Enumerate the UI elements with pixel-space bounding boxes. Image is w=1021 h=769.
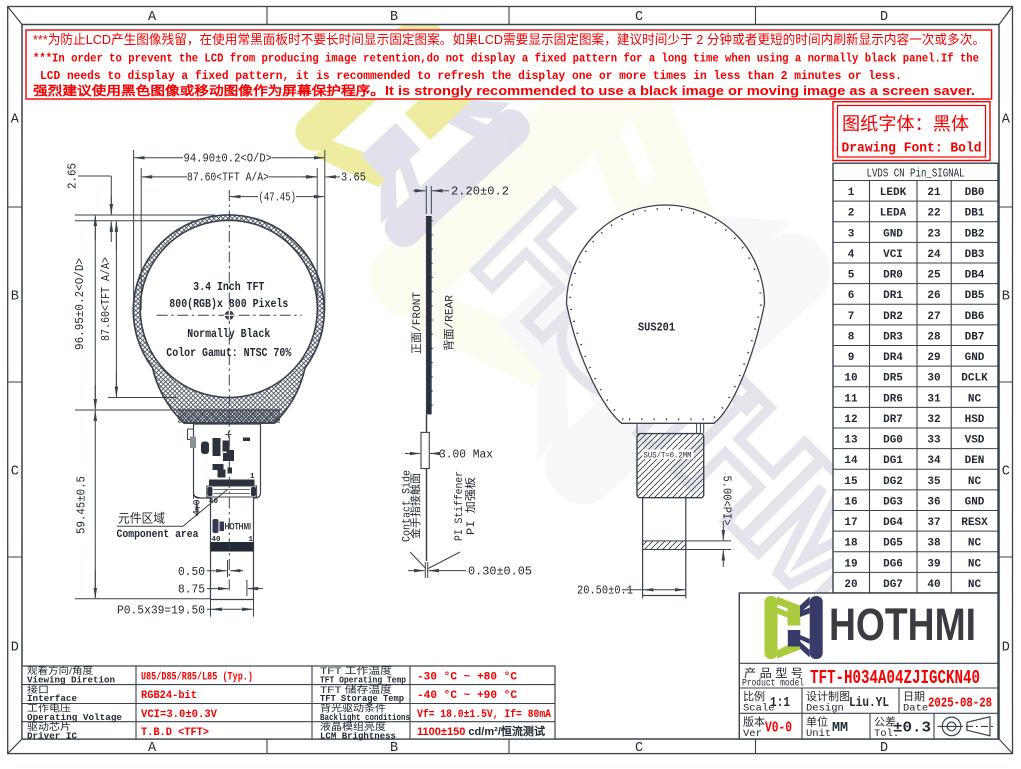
svg-text:2.65: 2.65 xyxy=(67,163,80,189)
svg-text:35: 35 xyxy=(927,476,941,488)
svg-text:13: 13 xyxy=(844,435,858,447)
svg-text:1: 1 xyxy=(848,187,855,199)
svg-text:3: 3 xyxy=(848,228,855,240)
svg-text:1: 1 xyxy=(250,473,255,481)
svg-text:单位: 单位 xyxy=(806,715,828,729)
svg-text:36: 36 xyxy=(927,496,940,508)
svg-text:Unit: Unit xyxy=(806,728,831,740)
svg-text:DB7: DB7 xyxy=(965,331,985,343)
svg-text:B: B xyxy=(390,741,398,756)
svg-text:94.90±0.2<O/D>: 94.90±0.2<O/D> xyxy=(184,153,273,166)
svg-text:3.65: 3.65 xyxy=(341,172,366,185)
svg-text:LCM Brightness: LCM Brightness xyxy=(320,730,396,741)
svg-text:A: A xyxy=(1002,113,1011,128)
svg-text:DR3: DR3 xyxy=(883,331,903,343)
svg-text:DB1: DB1 xyxy=(965,208,985,220)
svg-text:26: 26 xyxy=(927,290,940,302)
svg-text:(47.45): (47.45) xyxy=(259,191,297,204)
svg-text:设计制图: 设计制图 xyxy=(806,690,850,703)
svg-text:NC: NC xyxy=(968,579,982,591)
svg-text:C: C xyxy=(1002,465,1010,480)
svg-text:34: 34 xyxy=(927,455,941,467)
svg-text:2.20±0.2: 2.20±0.2 xyxy=(451,186,509,199)
svg-text:1100±150 cd/m²/恒流测试: 1100±150 cd/m²/恒流测试 xyxy=(417,724,545,738)
svg-text:28: 28 xyxy=(927,331,941,343)
svg-text:39: 39 xyxy=(927,558,940,570)
svg-text:DR1: DR1 xyxy=(883,290,903,302)
svg-text:11: 11 xyxy=(844,393,858,405)
svg-text:DB4: DB4 xyxy=(965,270,985,282)
svg-text:Design: Design xyxy=(806,703,844,715)
svg-text:15: 15 xyxy=(844,476,858,488)
svg-text:10: 10 xyxy=(844,373,857,385)
svg-text:37: 37 xyxy=(927,517,940,529)
svg-text:DG4: DG4 xyxy=(883,517,903,529)
svg-text:DG0: DG0 xyxy=(883,435,903,447)
svg-text:Vf= 18.0±1.5V, If= 80mA: Vf= 18.0±1.5V, If= 80mA xyxy=(417,709,551,721)
svg-text:27: 27 xyxy=(927,311,940,323)
svg-text:DB5: DB5 xyxy=(965,290,985,302)
svg-text:38: 38 xyxy=(927,538,941,550)
svg-text:Ver: Ver xyxy=(743,728,762,740)
svg-text:日期: 日期 xyxy=(903,690,925,703)
svg-text:DR6: DR6 xyxy=(883,393,903,405)
svg-text:HOTHMI: HOTHMI xyxy=(829,599,976,650)
svg-text:D: D xyxy=(1002,641,1010,656)
svg-text:背面/REAR: 背面/REAR xyxy=(442,295,457,351)
svg-text:NC: NC xyxy=(968,558,982,570)
svg-text:1:1: 1:1 xyxy=(770,695,790,711)
svg-text:-40 °C ~ +90 °C: -40 °C ~ +90 °C xyxy=(417,690,517,702)
svg-text:DR2: DR2 xyxy=(883,311,903,323)
svg-text:GND: GND xyxy=(965,496,985,508)
svg-text:MM: MM xyxy=(832,720,848,736)
svg-text:P0.5x39=19.50: P0.5x39=19.50 xyxy=(117,604,205,617)
svg-text:96.95±0.2<O/D>: 96.95±0.2<O/D> xyxy=(74,258,87,350)
svg-text:PI Stiffener: PI Stiffener xyxy=(454,471,466,541)
svg-text:GND: GND xyxy=(965,352,985,364)
svg-text:DR4: DR4 xyxy=(883,352,903,364)
svg-text:9: 9 xyxy=(848,352,855,364)
svg-text:DG6: DG6 xyxy=(883,558,903,570)
svg-text:24: 24 xyxy=(927,249,941,261)
svg-text:元件区域: 元件区域 xyxy=(118,512,165,526)
svg-text:正面/FRONT: 正面/FRONT xyxy=(411,292,424,354)
svg-text:DG3: DG3 xyxy=(883,496,903,508)
svg-text:87.60<TFT A/A>: 87.60<TFT A/A> xyxy=(100,257,113,341)
svg-text:4.07: 4.07 xyxy=(193,494,204,516)
svg-text:DCLK: DCLK xyxy=(961,373,988,385)
svg-text:VCI=3.0±0.3V: VCI=3.0±0.3V xyxy=(141,709,217,721)
svg-text:-30 °C ~ +80 °C: -30 °C ~ +80 °C xyxy=(417,672,517,684)
svg-text:C: C xyxy=(11,465,19,480)
svg-text:33: 33 xyxy=(927,435,941,447)
svg-text:DB2: DB2 xyxy=(965,228,985,240)
svg-text:Interface: Interface xyxy=(27,693,77,704)
svg-text:20.50±0.1: 20.50±0.1 xyxy=(577,585,633,598)
svg-text:DR0: DR0 xyxy=(883,270,903,282)
svg-text:14: 14 xyxy=(844,455,858,467)
svg-text:DG1: DG1 xyxy=(883,455,903,467)
svg-text:87.60<TFT A/A>: 87.60<TFT A/A> xyxy=(187,172,269,185)
svg-text:20: 20 xyxy=(844,579,857,591)
svg-text:19: 19 xyxy=(844,558,857,570)
svg-text:LVDS CN Pin_SIGNAL: LVDS CN Pin_SIGNAL xyxy=(867,168,965,181)
svg-text:Product model: Product model xyxy=(742,678,804,690)
svg-text:D: D xyxy=(880,10,888,25)
svg-text:D: D xyxy=(880,741,888,756)
svg-text:Component area: Component area xyxy=(117,529,199,541)
svg-text:LEDK: LEDK xyxy=(880,187,907,199)
svg-text:12: 12 xyxy=(844,414,857,426)
svg-text:NC: NC xyxy=(968,393,982,405)
svg-text:C: C xyxy=(635,741,643,756)
svg-text:SUS201: SUS201 xyxy=(638,322,675,335)
svg-text:A: A xyxy=(148,741,157,756)
svg-text:32: 32 xyxy=(927,414,940,426)
svg-text:23: 23 xyxy=(927,228,941,240)
svg-text:DR5: DR5 xyxy=(883,373,903,385)
svg-text:0.50: 0.50 xyxy=(178,566,205,579)
svg-text:DB0: DB0 xyxy=(965,187,985,199)
svg-text:31: 31 xyxy=(927,393,941,405)
svg-text:RGB24-bit: RGB24-bit xyxy=(141,690,197,702)
svg-text:40: 40 xyxy=(209,498,219,506)
svg-text:A: A xyxy=(11,113,20,128)
svg-text:59.45±0.5: 59.45±0.5 xyxy=(76,476,89,534)
svg-text:TFT-H034A04ZJIGCKN40: TFT-H034A04ZJIGCKN40 xyxy=(810,667,980,689)
svg-text:NC: NC xyxy=(968,476,982,488)
svg-text:B: B xyxy=(1002,290,1010,305)
svg-text:5.00<PI>: 5.00<PI> xyxy=(719,476,732,526)
svg-text:25: 25 xyxy=(927,270,941,282)
svg-text:强烈建议使用黑色图像或移动图像作为屏幕保护程序。It is: 强烈建议使用黑色图像或移动图像作为屏幕保护程序。It is strongly r… xyxy=(33,83,975,98)
svg-text:A: A xyxy=(148,10,157,25)
svg-text:DB6: DB6 xyxy=(965,311,985,323)
svg-text:4: 4 xyxy=(848,249,855,261)
svg-text:2: 2 xyxy=(848,208,855,220)
svg-text:±0.3: ±0.3 xyxy=(893,720,931,737)
svg-text:RESX: RESX xyxy=(961,517,988,529)
svg-text:29: 29 xyxy=(927,352,940,364)
svg-text:5: 5 xyxy=(848,270,855,282)
svg-text:0.30±0.05: 0.30±0.05 xyxy=(468,566,532,579)
svg-text:DG7: DG7 xyxy=(883,579,903,591)
svg-text:8.75: 8.75 xyxy=(178,584,205,597)
svg-text:LEDA: LEDA xyxy=(880,208,907,220)
svg-text:7: 7 xyxy=(848,311,855,323)
svg-text:30: 30 xyxy=(927,373,940,385)
svg-text:U85/D85/R85/L85 (Typ.): U85/D85/R85/L85 (Typ.) xyxy=(141,672,253,684)
svg-text:***为防止LCD产生图像残留，在使用常黑面板时不要长时间显: ***为防止LCD产生图像残留，在使用常黑面板时不要长时间显示固定图案。如果LC… xyxy=(33,32,985,47)
svg-text:DB3: DB3 xyxy=(965,249,985,261)
svg-text:21: 21 xyxy=(927,187,941,199)
svg-text:VSD: VSD xyxy=(965,435,985,447)
svg-text:B: B xyxy=(11,290,19,305)
svg-text:***In order to prevent the LCD: ***In order to prevent the LCD from prod… xyxy=(33,52,979,66)
svg-text:图纸字体：黑体: 图纸字体：黑体 xyxy=(842,114,969,134)
svg-text:16: 16 xyxy=(844,496,857,508)
svg-text:版本: 版本 xyxy=(743,715,765,729)
svg-text:2025-08-28: 2025-08-28 xyxy=(928,697,992,712)
svg-text:Liu.YL: Liu.YL xyxy=(849,696,889,711)
svg-text:T.B.D <TFT>: T.B.D <TFT> xyxy=(141,727,209,739)
svg-text:TFT Storage Temp: TFT Storage Temp xyxy=(320,693,404,704)
svg-text:HSD: HSD xyxy=(965,414,985,426)
svg-text:40: 40 xyxy=(927,579,940,591)
svg-text:6: 6 xyxy=(848,290,855,302)
svg-text:C: C xyxy=(635,10,643,25)
svg-text:17: 17 xyxy=(844,517,857,529)
svg-text:D: D xyxy=(11,641,19,656)
svg-text:比例: 比例 xyxy=(743,689,765,703)
svg-text:NC: NC xyxy=(968,538,982,550)
svg-text:PI 加强板: PI 加强板 xyxy=(463,477,478,535)
svg-text:Driver IC: Driver IC xyxy=(27,730,77,741)
svg-text:DR7: DR7 xyxy=(883,414,903,426)
svg-text:DEN: DEN xyxy=(965,455,985,467)
svg-text:DG5: DG5 xyxy=(883,538,903,550)
svg-text:SUS/T=0.2MM: SUS/T=0.2MM xyxy=(644,451,692,461)
svg-text:HOTHMI: HOTHMI xyxy=(225,522,252,532)
svg-text:Drawing Font: Bold: Drawing Font: Bold xyxy=(842,142,982,157)
svg-text:V0-0: V0-0 xyxy=(765,721,792,737)
svg-text:22: 22 xyxy=(927,208,940,220)
svg-text:LCD needs to display a fixed p: LCD needs to display a fixed pattern, it… xyxy=(40,69,902,83)
svg-text:Date: Date xyxy=(903,703,928,715)
svg-text:VCI: VCI xyxy=(883,249,903,261)
svg-text:B: B xyxy=(390,10,398,25)
svg-text:18: 18 xyxy=(844,538,858,550)
svg-text:金手指接触面: 金手指接触面 xyxy=(408,473,423,539)
svg-text:8: 8 xyxy=(848,331,855,343)
svg-text:DG2: DG2 xyxy=(883,476,903,488)
svg-text:GND: GND xyxy=(883,228,903,240)
svg-text:3.00 Max: 3.00 Max xyxy=(439,448,493,461)
